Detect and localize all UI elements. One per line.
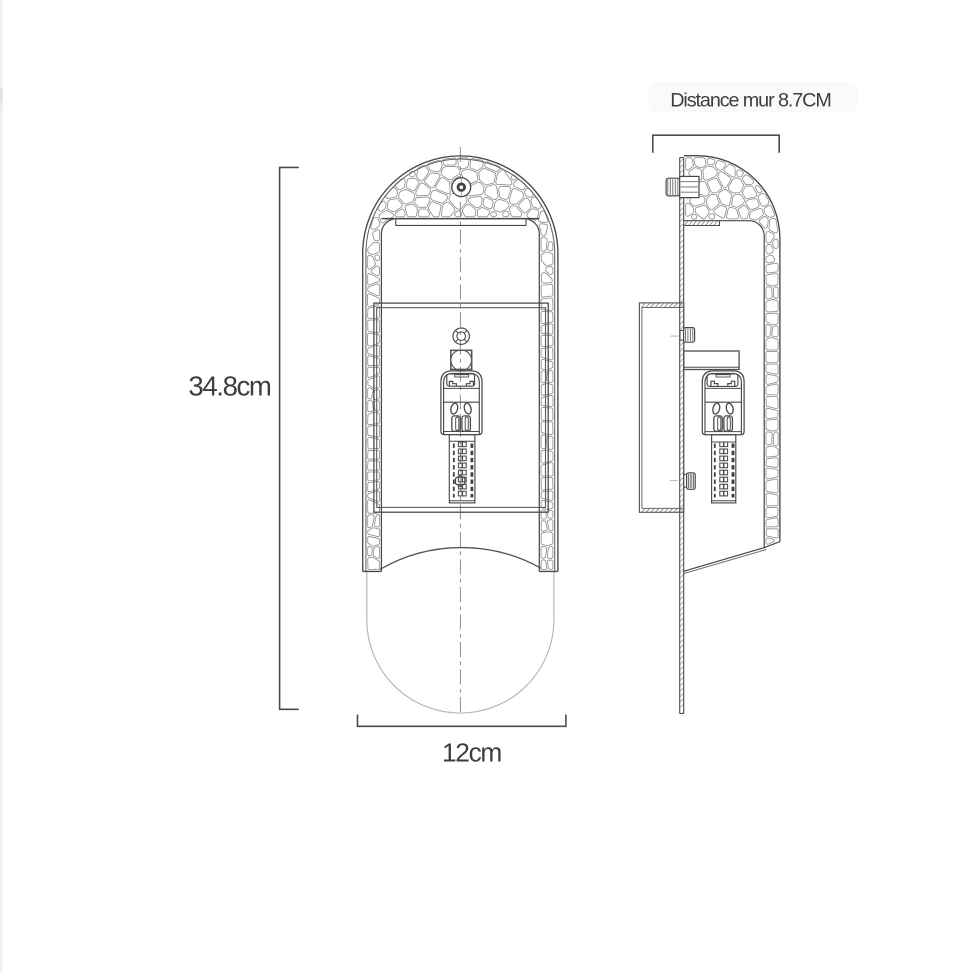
svg-text:Distance mur 8.7CM: Distance mur 8.7CM (670, 89, 830, 111)
svg-text:34.8cm: 34.8cm (188, 371, 271, 402)
svg-text:12cm: 12cm (442, 738, 501, 768)
